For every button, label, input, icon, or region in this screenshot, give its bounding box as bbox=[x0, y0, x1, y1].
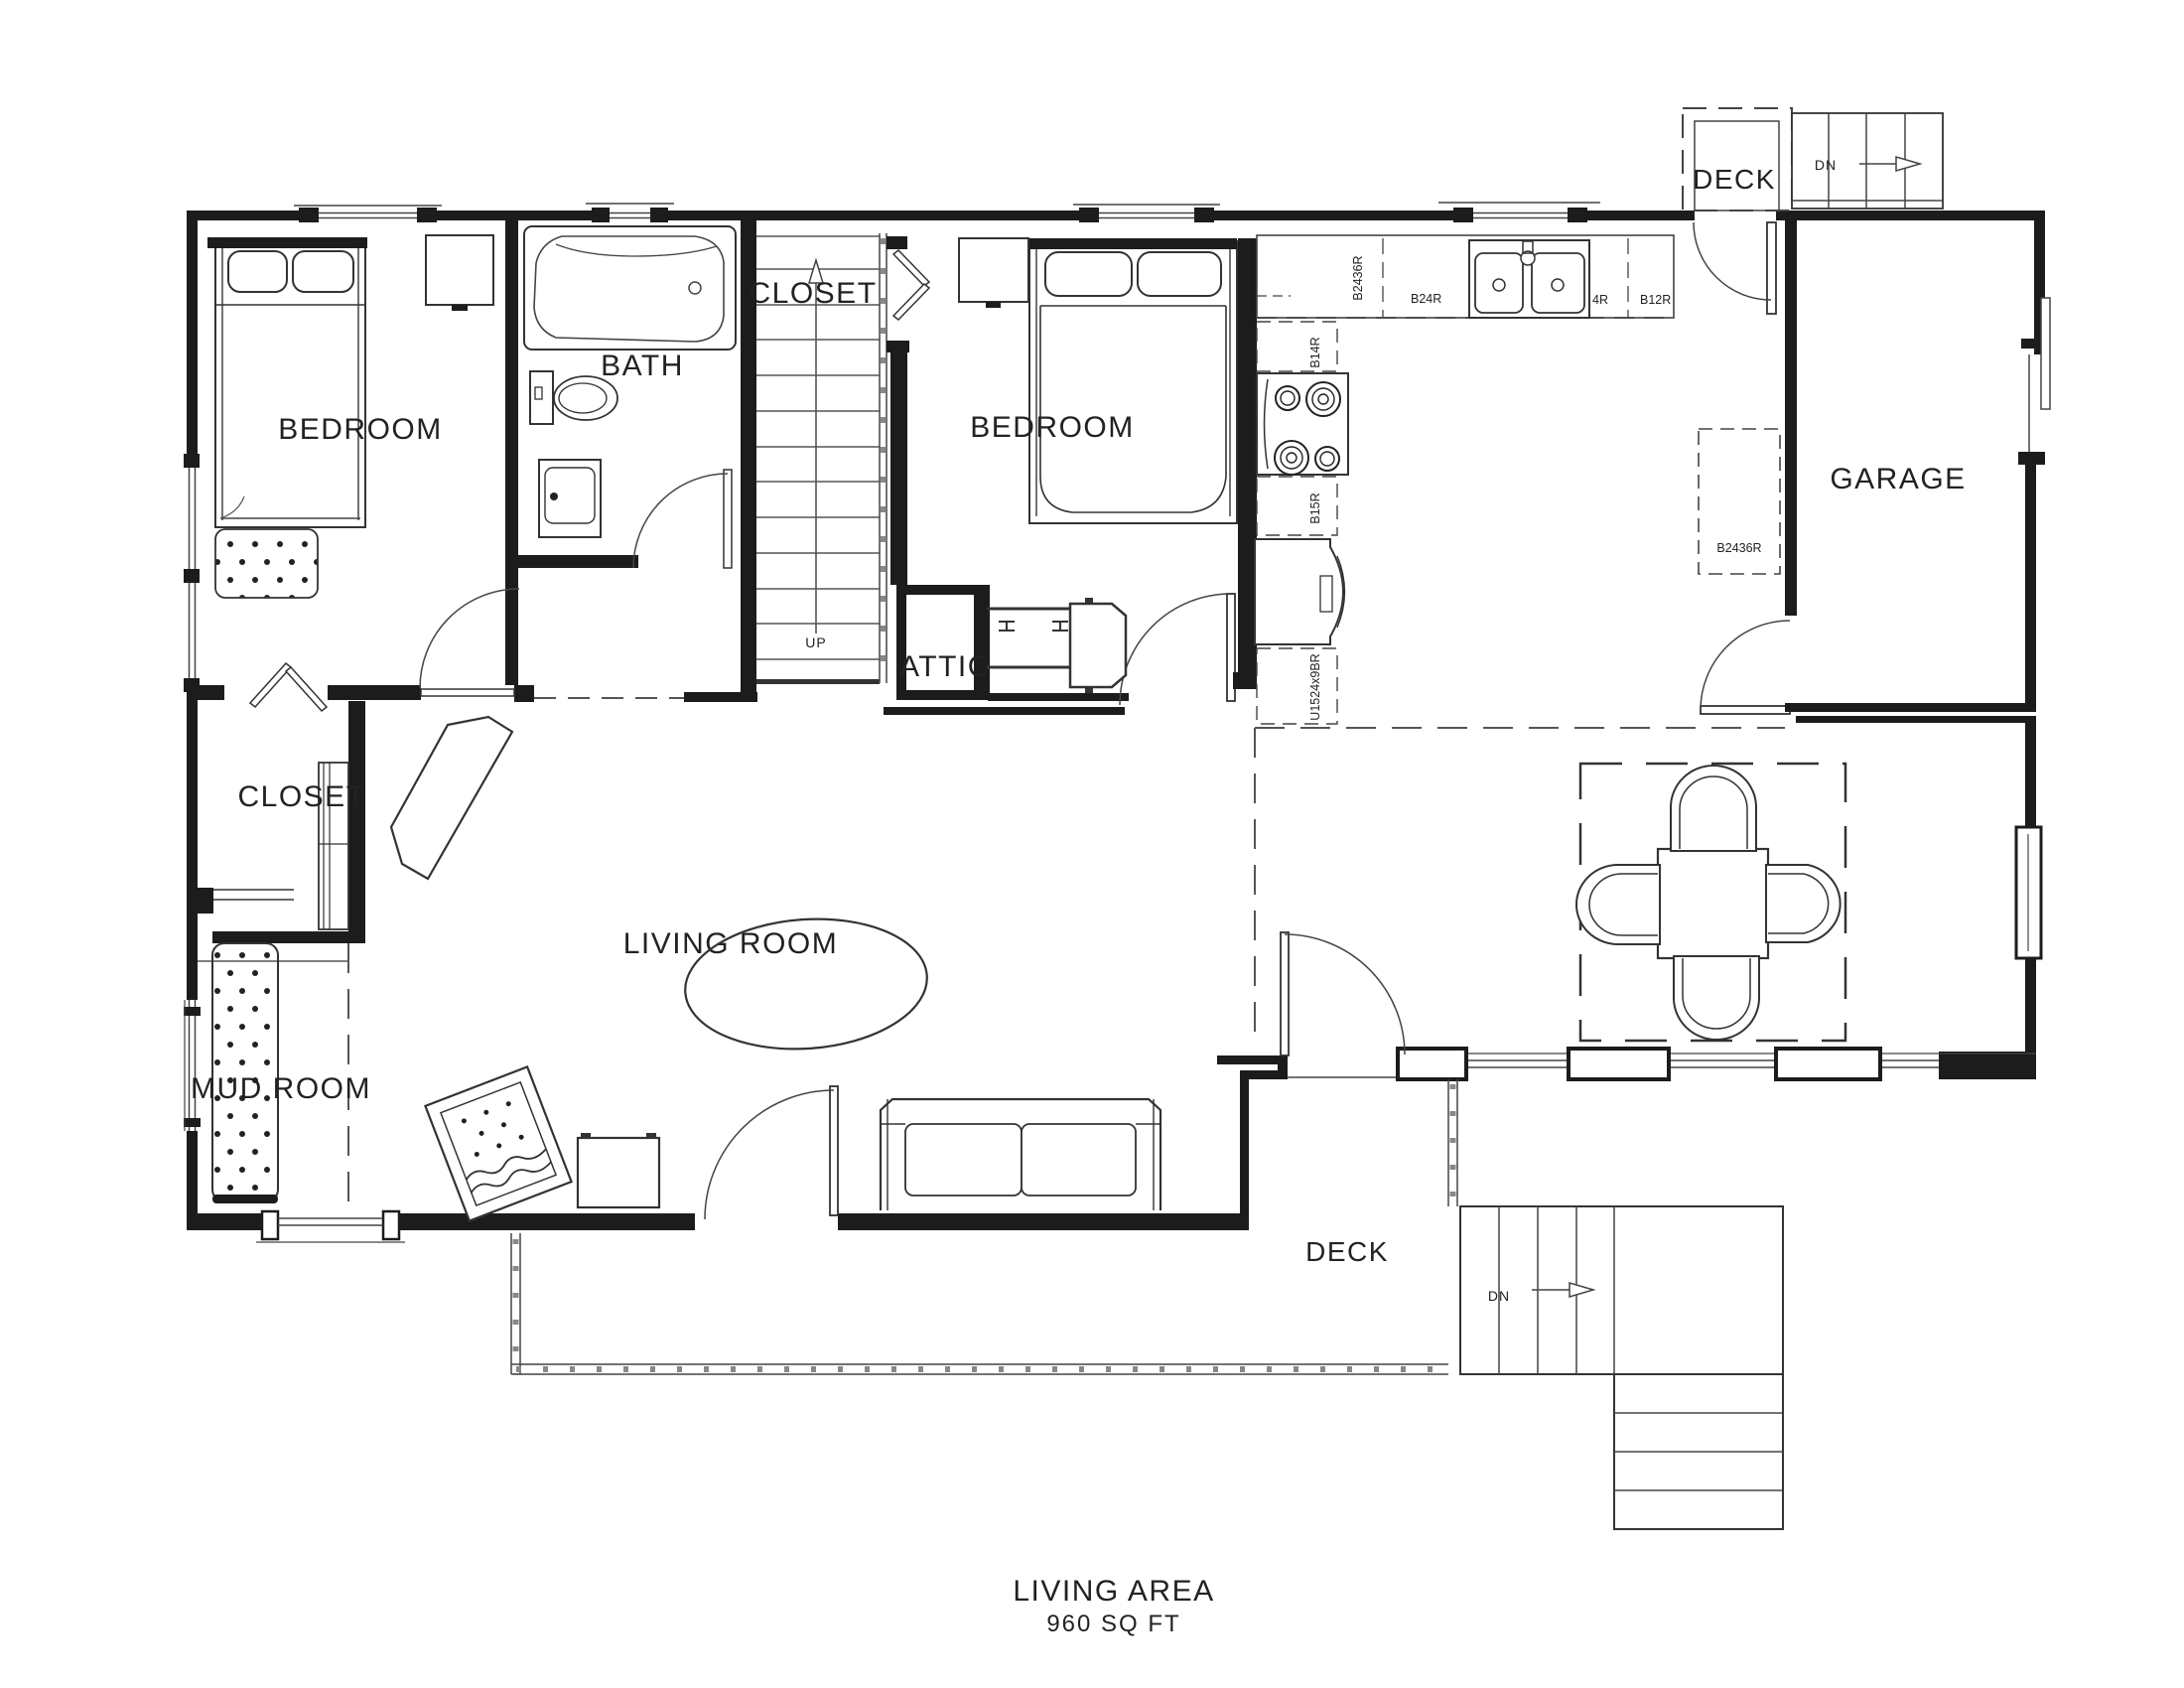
svg-text:960 SQ FT: 960 SQ FT bbox=[1046, 1611, 1180, 1637]
svg-text:CLOSET: CLOSET bbox=[237, 780, 365, 813]
svg-text:B24R: B24R bbox=[1411, 292, 1441, 306]
svg-text:B2436R: B2436R bbox=[1351, 255, 1365, 300]
svg-text:BEDROOM: BEDROOM bbox=[970, 411, 1135, 444]
svg-text:DECK: DECK bbox=[1693, 164, 1776, 195]
svg-text:4R: 4R bbox=[1592, 293, 1608, 307]
svg-text:DN: DN bbox=[1488, 1288, 1510, 1304]
svg-text:B2436R: B2436R bbox=[1716, 541, 1761, 555]
svg-text:LIVING AREA: LIVING AREA bbox=[1013, 1575, 1214, 1608]
svg-text:DN: DN bbox=[1815, 157, 1837, 173]
svg-text:ATTIC: ATTIC bbox=[899, 650, 991, 683]
svg-text:GARAGE: GARAGE bbox=[1830, 463, 1966, 495]
svg-text:B12R: B12R bbox=[1640, 293, 1671, 307]
svg-text:BATH: BATH bbox=[601, 350, 684, 382]
svg-text:DECK: DECK bbox=[1305, 1236, 1389, 1267]
svg-text:UP: UP bbox=[805, 634, 826, 650]
svg-text:B15R: B15R bbox=[1308, 492, 1322, 523]
svg-text:U1524x9BR: U1524x9BR bbox=[1308, 653, 1322, 720]
svg-text:MUD ROOM: MUD ROOM bbox=[191, 1072, 371, 1105]
svg-text:BEDROOM: BEDROOM bbox=[278, 413, 443, 446]
svg-text:LIVING ROOM: LIVING ROOM bbox=[623, 927, 839, 960]
svg-text:B14R: B14R bbox=[1308, 337, 1322, 367]
svg-text:CLOSET: CLOSET bbox=[749, 277, 877, 310]
